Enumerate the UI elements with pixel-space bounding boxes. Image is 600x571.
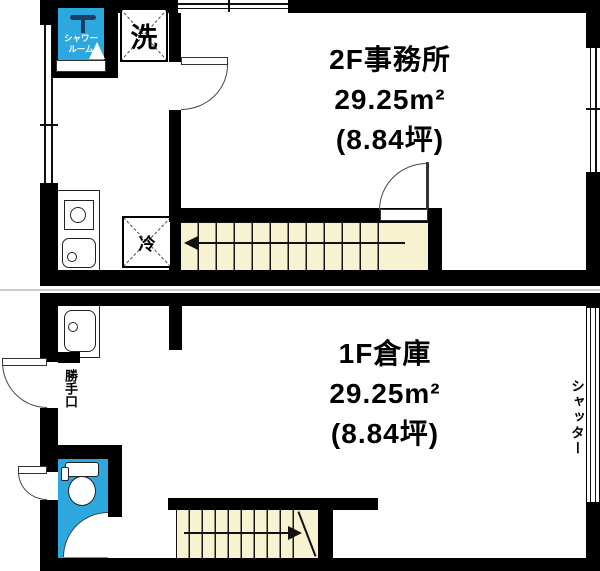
window-icon	[586, 48, 600, 172]
kitchen-sink-drain-icon	[67, 252, 77, 262]
wall	[40, 500, 58, 558]
floor2-label: 2F事務所 29.25m² (8.84坪)	[255, 40, 525, 160]
wall	[40, 270, 600, 286]
refrigerator-box: 冷	[122, 216, 172, 268]
washing-machine-label: 洗	[131, 16, 158, 55]
wall	[40, 183, 58, 270]
toilet-bowl-icon	[68, 476, 96, 506]
floor1-label: 1F倉庫 29.25m² (8.84坪)	[250, 334, 520, 454]
partition-wall	[169, 13, 181, 62]
refrigerator-label: 冷	[139, 230, 156, 255]
wall	[40, 558, 600, 571]
stair-direction-arrow	[184, 236, 198, 250]
entry-door-leaf	[181, 57, 228, 65]
shower-head-icon-stem	[81, 19, 85, 33]
toilet-wall	[58, 445, 122, 459]
plan-divider	[0, 289, 600, 291]
wall	[40, 293, 600, 306]
shower-room: シャワー ルーム	[58, 8, 104, 60]
wall	[40, 408, 58, 472]
partition-stub	[169, 306, 182, 350]
shutter-icon	[587, 308, 599, 502]
utility-sink-icon	[64, 310, 96, 352]
wall	[586, 0, 600, 48]
stairwell-wall	[428, 208, 442, 270]
toilet-handle-icon	[61, 467, 69, 481]
stair-treads	[177, 510, 304, 558]
toilet-ext-door-arc	[18, 472, 47, 500]
stair-direction-line	[198, 242, 405, 244]
floor2-area: 29.25m²	[255, 80, 525, 120]
back-door-label: 勝手口	[58, 364, 80, 412]
shower-triangle-mark	[89, 42, 105, 59]
toilet-tank-icon	[65, 462, 99, 477]
back-door-arc	[2, 362, 47, 408]
floor2-tsubo: (8.84坪)	[255, 120, 525, 160]
window-icon	[178, 0, 288, 12]
stair-direction-line	[184, 532, 288, 534]
washing-machine-box: 洗	[120, 8, 168, 62]
toilet-wall	[108, 459, 122, 517]
floor1-tsubo: (8.84坪)	[250, 414, 520, 454]
stairs-wall	[318, 510, 333, 558]
wall	[586, 172, 600, 270]
shower-door	[56, 60, 106, 72]
stair-door-opening	[380, 209, 428, 221]
stair-treads	[181, 223, 383, 270]
stairs-wall	[168, 498, 378, 510]
entry-door-arc	[181, 65, 228, 110]
wall-stub	[58, 352, 80, 363]
stove-burner-icon	[70, 207, 86, 223]
shutter-label: シャッター	[558, 360, 586, 475]
stair-direction-arrow	[288, 526, 302, 540]
stair-door-arc	[379, 163, 427, 210]
wall	[288, 0, 600, 13]
floor1-area: 29.25m²	[250, 374, 520, 414]
stairs-2f	[181, 222, 428, 270]
utility-sink-drain-icon	[68, 322, 78, 332]
floor1-name: 1F倉庫	[250, 334, 520, 374]
wall	[40, 306, 58, 362]
floor-plan: シャワー ルーム 洗 冷	[0, 0, 600, 571]
floor2-name: 2F事務所	[255, 40, 525, 80]
